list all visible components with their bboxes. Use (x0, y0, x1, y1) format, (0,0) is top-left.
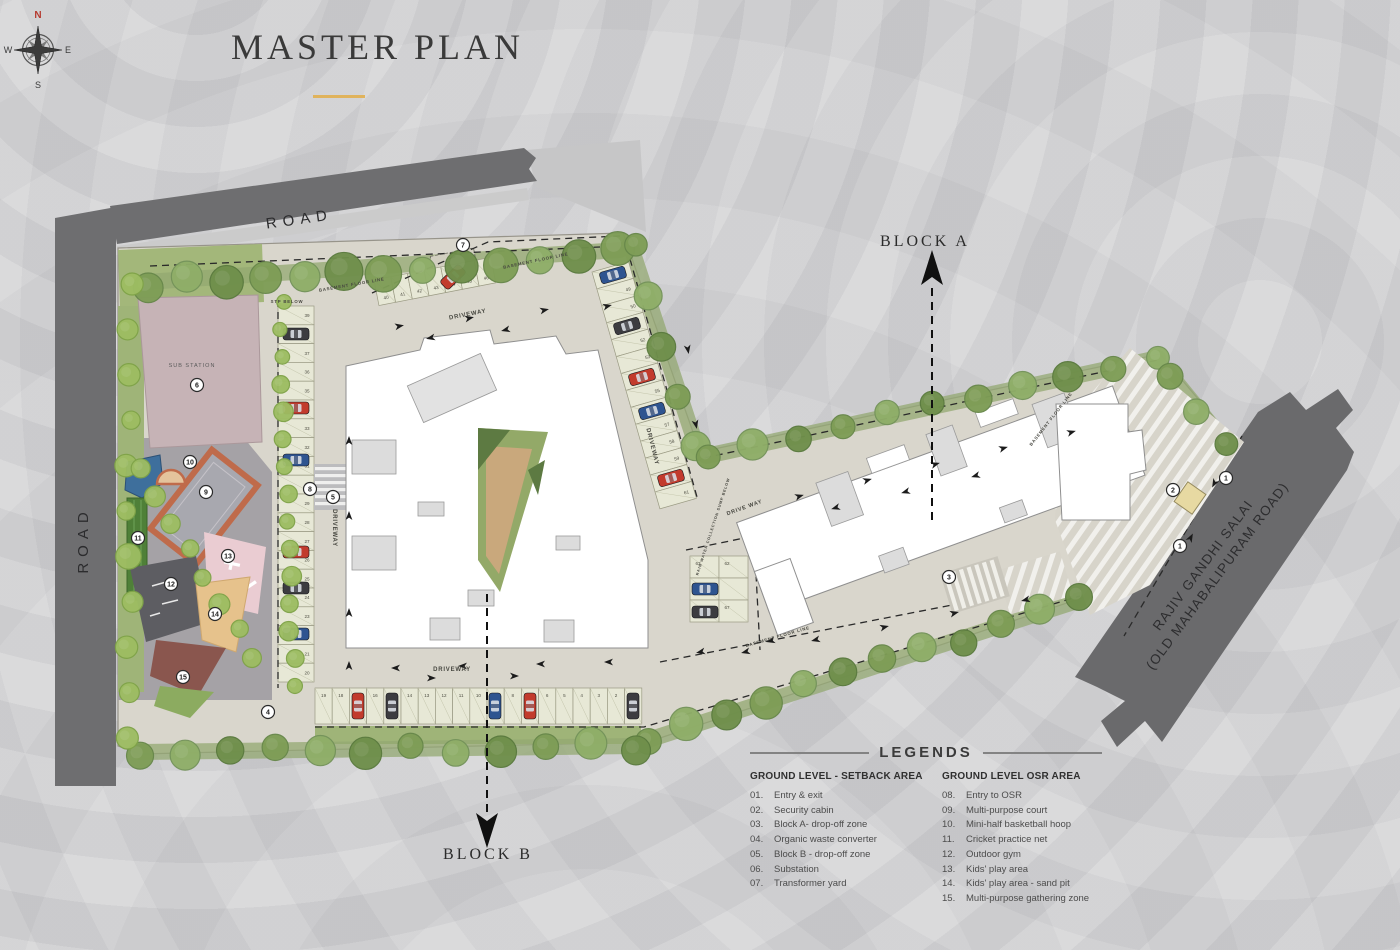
plan-marker-5: 5 (327, 491, 340, 504)
stall-number: 13 (424, 693, 430, 698)
plan-marker-11: 11 (132, 532, 145, 545)
marker-number: 1 (1224, 476, 1228, 483)
car-roof (354, 704, 362, 708)
page-title: MASTER PLAN (231, 26, 524, 68)
tree-highlight (285, 569, 294, 578)
road-left-label: ROAD (75, 506, 92, 573)
compass-south: S (35, 80, 41, 90)
legend-item-label: Transformer yard (774, 877, 847, 892)
tree-highlight (1104, 360, 1115, 371)
car-roof (388, 704, 396, 708)
block-b-arrowhead (476, 813, 498, 848)
marker-number: 6 (195, 383, 199, 390)
car (489, 693, 501, 719)
tree-highlight (282, 488, 290, 496)
stall-number: 14 (407, 693, 413, 698)
tree-highlight (790, 430, 802, 442)
tree-highlight (794, 675, 806, 687)
stall-number: 35 (304, 388, 310, 393)
tree-highlight (275, 325, 281, 331)
legend-item-number: 03. (750, 818, 774, 833)
car-roof (294, 456, 298, 464)
tree-highlight (1150, 350, 1160, 360)
legend-item: 01.Entry & exit (750, 789, 926, 804)
tree-highlight (1187, 403, 1198, 414)
tree-highlight (266, 738, 278, 750)
legend-item-number: 09. (942, 804, 966, 819)
car (692, 606, 718, 618)
legend-item-label: Multi-purpose court (966, 804, 1047, 819)
compass-rose: N E S W (0, 0, 76, 90)
tree-highlight (675, 712, 690, 727)
tree-highlight (289, 652, 297, 660)
stall-number: 27 (304, 539, 310, 544)
plan-marker-9: 9 (200, 486, 213, 499)
tree-highlight (148, 489, 157, 498)
tree-highlight (872, 649, 884, 661)
stall-number: 8 (512, 693, 515, 698)
tree-highlight (402, 737, 413, 748)
tree-highlight (716, 705, 729, 718)
car (524, 693, 536, 719)
stall-number: 29 (304, 501, 310, 506)
marker-number: 9 (204, 490, 208, 497)
marker-number: 5 (331, 495, 335, 502)
tree-highlight (277, 352, 284, 359)
tree-highlight (164, 517, 173, 526)
direction-arrow-icon (684, 344, 692, 354)
tree-highlight (119, 639, 129, 649)
plan-marker-2: 2 (1167, 484, 1180, 497)
plan-marker-4: 4 (262, 706, 275, 719)
legend-item-label: Security cabin (774, 804, 834, 819)
tree-highlight (700, 449, 711, 460)
tree-highlight (275, 378, 283, 386)
legend-item: 06.Substation (750, 863, 926, 878)
legend-heading: LEGENDS (879, 744, 973, 761)
tree-highlight (371, 261, 387, 277)
legend-item-number: 10. (942, 818, 966, 833)
tree-highlight (991, 614, 1003, 626)
tree-highlight (310, 740, 324, 754)
legend-item: 03.Block A- drop-off zone (750, 818, 926, 833)
legend-item: 13.Kids' play area (942, 863, 1102, 878)
compass-west: W (4, 45, 13, 55)
stall-number: 10 (476, 693, 482, 698)
stall-number: 37 (304, 351, 310, 356)
stall-number: 32 (304, 445, 310, 450)
tree-highlight (628, 237, 638, 247)
tree-highlight (284, 543, 292, 551)
stall-number: 19 (321, 693, 327, 698)
tree-highlight (184, 542, 192, 550)
marker-number: 7 (461, 243, 465, 250)
legend-item-number: 14. (942, 877, 966, 892)
stall-number: 11 (459, 693, 464, 698)
stall-number: 3 (598, 693, 601, 698)
legend-column-title: GROUND LEVEL OSR AREA (942, 771, 1102, 782)
stall-number: 67 (724, 605, 730, 610)
driveway-label: DRIVEWAY (331, 509, 337, 547)
plan-marker-13: 13 (222, 550, 235, 563)
legend-item: 02.Security cabin (750, 804, 926, 819)
legend-column-title: GROUND LEVEL - SETBACK AREA (750, 771, 926, 782)
car (627, 693, 639, 719)
legend-item: 07.Transformer yard (750, 877, 926, 892)
legend-column-osr: GROUND LEVEL OSR AREA 08.Entry to OSR09.… (942, 771, 1102, 907)
tree-highlight (413, 261, 425, 273)
legend-item: 09.Multi-purpose court (942, 804, 1102, 819)
tree-highlight (1057, 366, 1071, 380)
legend-item: 12.Outdoor gym (942, 848, 1102, 863)
legend-item-number: 02. (750, 804, 774, 819)
tree-highlight (580, 732, 594, 746)
car-roof (294, 330, 298, 338)
marker-number: 10 (186, 460, 194, 467)
tree-highlight (175, 745, 188, 758)
marker-number: 8 (308, 487, 312, 494)
tree-highlight (537, 738, 548, 749)
stall-number: 6 (546, 693, 549, 698)
stall-number: 23 (304, 614, 310, 619)
marker-number: 2 (1171, 488, 1175, 495)
legend-panel: LEGENDS GROUND LEVEL - SETBACK AREA 01.E… (750, 744, 1102, 907)
tree-highlight (221, 741, 233, 753)
tree-highlight (1013, 376, 1026, 389)
title-underline (313, 95, 365, 98)
stall-number: 33 (304, 426, 310, 431)
tree-highlight (118, 458, 128, 468)
road-left (55, 207, 116, 786)
tree-highlight (212, 597, 221, 606)
marker-number: 12 (167, 582, 175, 589)
tree-highlight (1070, 588, 1082, 600)
block-a-arrowhead (921, 250, 943, 285)
stall-number: 21 (304, 652, 310, 657)
stall-number: 26 (304, 558, 310, 563)
marker-number: 1 (1178, 544, 1182, 551)
marker-number: 13 (224, 554, 232, 561)
tree-highlight (879, 404, 890, 415)
plan-marker-10: 10 (184, 456, 197, 469)
tree-highlight (294, 266, 308, 280)
tree-highlight (120, 322, 129, 331)
car-roof (491, 704, 499, 708)
tree-highlight (120, 547, 132, 559)
stall-number: 20 (304, 670, 310, 675)
tree-highlight (282, 624, 291, 633)
tree-highlight (955, 634, 967, 646)
plan-marker-8: 8 (304, 483, 317, 496)
legend-item: 05.Block B - drop-off zone (750, 848, 926, 863)
plan-marker-1: 1 (1220, 472, 1233, 485)
legend-item-label: Organic waste converter (774, 833, 877, 848)
car-roof (294, 404, 298, 412)
tree-highlight (626, 740, 639, 753)
site-plan-drawing: ROAD ROAD RAJIV GANDHI SALAI (OLD MAHABA… (0, 0, 1400, 950)
marker-number: 3 (947, 575, 951, 582)
tree-highlight (1029, 599, 1042, 612)
stall-number: 24 (304, 595, 310, 600)
legend-item-label: Cricket practice net (966, 833, 1047, 848)
compass-east: E (65, 45, 71, 55)
compass-north: N (34, 10, 41, 21)
plan-marker-1: 1 (1174, 540, 1187, 553)
tree-highlight (122, 686, 131, 695)
marker-number: 4 (266, 710, 270, 717)
compass-star (14, 26, 62, 74)
legend-item-number: 13. (942, 863, 966, 878)
substation-area (138, 295, 262, 448)
legend-item-number: 04. (750, 833, 774, 848)
legend-item: 04.Organic waste converter (750, 833, 926, 848)
legend-column-setback: GROUND LEVEL - SETBACK AREA 01.Entry & e… (750, 771, 926, 907)
legend-item-label: Entry to OSR (966, 789, 1022, 804)
car-roof (526, 704, 534, 708)
stall-number: 12 (441, 693, 447, 698)
tree-highlight (215, 271, 230, 286)
legend-item-number: 06. (750, 863, 774, 878)
tree-highlight (283, 598, 291, 606)
tree-highlight (651, 337, 664, 350)
tree-highlight (134, 462, 143, 471)
stall-number: 18 (338, 693, 344, 698)
car-roof (703, 608, 707, 616)
car-roof (629, 704, 637, 708)
block-b-label: BLOCK B (418, 846, 558, 864)
legend-item-label: Block B - drop-off zone (774, 848, 870, 863)
legend-item-label: Kids' play area - sand pit (966, 877, 1070, 892)
tree-highlight (490, 741, 504, 755)
marker-number: 11 (134, 536, 142, 543)
tree-highlight (835, 418, 846, 429)
legend-item-label: Entry & exit (774, 789, 823, 804)
car (352, 693, 364, 719)
tree-highlight (120, 730, 130, 740)
stall-number: 5 (563, 693, 566, 698)
tree-highlight (331, 258, 348, 275)
tree-highlight (912, 637, 925, 650)
legend-item-label: Block A- drop-off zone (774, 818, 867, 833)
plan-marker-15: 15 (177, 671, 190, 684)
marker-number: 14 (211, 612, 219, 619)
legend-rule-left (750, 752, 869, 754)
tree-highlight (176, 266, 190, 280)
plan-marker-3: 3 (943, 571, 956, 584)
stall-number: 16 (373, 693, 379, 698)
tree-highlight (197, 572, 205, 580)
stall-number: 2 (615, 693, 618, 698)
tree-highlight (969, 389, 981, 401)
car (386, 693, 398, 719)
legend-heading-row: LEGENDS (750, 744, 1102, 761)
tree-highlight (124, 276, 134, 286)
legend-item-number: 11. (942, 833, 966, 848)
legend-item-label: Kids' play area (966, 863, 1028, 878)
stp-below-label: STP BELOW (271, 299, 304, 304)
legend-item-number: 01. (750, 789, 774, 804)
plan-marker-6: 6 (191, 379, 204, 392)
plan-marker-14: 14 (209, 608, 222, 621)
legend-rule-right (983, 752, 1102, 754)
legend-item-label: Mini-half basketball hoop (966, 818, 1071, 833)
car (692, 583, 718, 595)
tree-highlight (234, 623, 242, 631)
tree-highlight (282, 516, 289, 523)
tree-highlight (277, 405, 286, 414)
stall-number: 39 (304, 313, 310, 318)
driveway-label: DRIVEWAY (433, 667, 471, 673)
legend-item-number: 08. (942, 789, 966, 804)
legend-item-label: Substation (774, 863, 819, 878)
tree-highlight (277, 433, 285, 441)
stall-number: 62 (724, 561, 730, 566)
tree-highlight (125, 414, 133, 422)
tree-highlight (121, 367, 131, 377)
legend-item: 15.Multi-purpose gathering zone (942, 892, 1102, 907)
stall-number: 4 (580, 693, 583, 698)
footpath-wedge (527, 140, 646, 232)
tree-highlight (125, 594, 134, 603)
tree-highlight (685, 436, 698, 449)
legend-item: 08.Entry to OSR (942, 789, 1102, 804)
stall-number: 28 (304, 520, 310, 525)
car-roof (703, 585, 707, 593)
stall-number: 25 (304, 576, 310, 581)
legend-item-number: 05. (750, 848, 774, 863)
legend-item-number: 07. (750, 877, 774, 892)
tree-highlight (638, 286, 651, 299)
substation-label: SUB STATION (169, 363, 216, 369)
legend-item: 10.Mini-half basketball hoop (942, 818, 1102, 833)
tree-highlight (1218, 436, 1228, 446)
master-plan-canvas: ROAD ROAD RAJIV GANDHI SALAI (OLD MAHABA… (0, 0, 1400, 950)
tree-highlight (1161, 367, 1173, 379)
tree-highlight (354, 742, 369, 757)
tree-highlight (279, 461, 286, 468)
plan-marker-12: 12 (165, 578, 178, 591)
tree-highlight (446, 744, 458, 756)
marker-number: 15 (179, 675, 187, 682)
legend-item-number: 12. (942, 848, 966, 863)
legend-item-number: 15. (942, 892, 966, 907)
tree-highlight (833, 662, 845, 674)
legend-item-label: Outdoor gym (966, 848, 1021, 863)
tree-highlight (290, 681, 297, 688)
tree-highlight (120, 505, 128, 513)
tree-highlight (755, 692, 770, 707)
legend-item: 11.Cricket practice net (942, 833, 1102, 848)
legend-item-label: Multi-purpose gathering zone (966, 892, 1089, 907)
tree-highlight (254, 266, 268, 280)
tree-highlight (450, 255, 465, 270)
tree-highlight (669, 388, 680, 399)
legend-item: 14.Kids' play area - sand pit (942, 877, 1102, 892)
plan-marker-7: 7 (457, 239, 470, 252)
block-a-label: BLOCK A (855, 233, 995, 251)
tree-highlight (606, 237, 621, 252)
tree-highlight (567, 245, 582, 260)
tree-highlight (245, 651, 254, 660)
stall-number: 36 (304, 370, 310, 375)
tree-highlight (742, 434, 756, 448)
